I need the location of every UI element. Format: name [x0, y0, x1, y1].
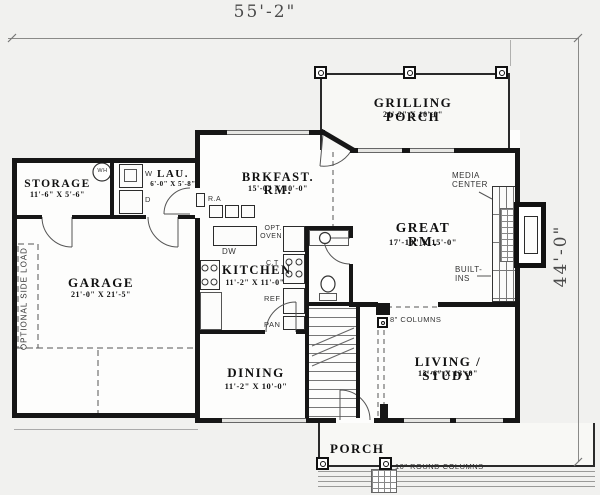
wall-segment [515, 148, 520, 423]
column-dot-icon [318, 70, 324, 76]
round-column-icon [316, 457, 329, 470]
room-name-garage: GARAGE [68, 276, 134, 290]
room-size-kitchen: 11'-2" X 11'-0" [220, 278, 290, 287]
room-size-great-room: 17'-10" X 15'-0" [381, 237, 465, 247]
wall-segment [305, 306, 309, 418]
column-dot-icon [383, 461, 389, 467]
dryer-label: D [145, 196, 151, 205]
room-name-storage: STORAGE [20, 178, 95, 190]
range-burner-icon [211, 265, 217, 271]
wall-segment [195, 218, 200, 418]
wall-segment [178, 215, 195, 219]
window [222, 418, 306, 423]
built-ins-label: BUILT- INS [455, 265, 493, 283]
wall-segment [349, 302, 378, 307]
columns8-label: 8" COLUMNS [390, 316, 441, 325]
stair-rail-diagonals [312, 328, 354, 366]
wall-segment [195, 330, 265, 334]
cooktop-burner-icon [296, 271, 302, 277]
washer-label: W [145, 170, 153, 179]
range-burner-icon [202, 279, 208, 285]
room-size-grilling-porch: 21'-2" X 10'-0" [348, 110, 478, 119]
porch-column-icon [314, 66, 327, 79]
wall-segment [349, 264, 353, 306]
wall-segment [380, 404, 388, 420]
window [227, 130, 309, 135]
room-size-laundry: 6'-0" X 5'-8" [144, 180, 202, 188]
room-name-laundry: LAU. [148, 169, 198, 181]
room-name-dining: DINING [226, 366, 286, 380]
room-name-porch: PORCH [330, 442, 382, 456]
range-burner-icon [211, 279, 217, 285]
wall-segment [12, 158, 200, 163]
room-size-dining: 11'-2" X 10'-0" [220, 381, 292, 391]
window [358, 148, 402, 153]
pantry-label: PAN [264, 321, 280, 330]
return-air-label: R.A [208, 196, 221, 204]
column-dot-icon [407, 70, 413, 76]
laundry-door-arc [164, 188, 190, 214]
storage-door-arc [42, 217, 72, 247]
front-door-arc [340, 390, 370, 420]
room-size-breakfast: 15'-0" X 10'-0" [233, 184, 323, 193]
round-columns-label: 10" ROUND COLUMNS [395, 463, 484, 472]
column-dot-icon [320, 461, 326, 467]
round-column-icon [379, 457, 392, 470]
wall-segment [349, 226, 353, 238]
square-column-icon [377, 317, 388, 328]
wall-segment [12, 413, 200, 418]
wall-segment [72, 215, 146, 219]
height-dimension: 44'-0" [551, 216, 571, 296]
dishwasher-label: DW [222, 247, 236, 256]
wall-segment [12, 158, 17, 418]
room-size-garage: 21'-0" X 21'-5" [62, 290, 140, 299]
label-leader-lines [477, 192, 492, 276]
toilet-bowl-icon [321, 276, 335, 292]
wall-segment [305, 226, 309, 306]
water-heater-label: WH [95, 168, 110, 174]
window [456, 418, 503, 423]
garage-bay-dashed-lines [17, 348, 195, 413]
window [410, 148, 454, 153]
floor-plan-sheet: 55'-2" 44'-0" GRILLING PORCH 21'-2" X 10… [0, 0, 600, 495]
wall-segment [305, 302, 353, 306]
wall-segment [438, 302, 520, 307]
window [404, 418, 450, 423]
room-size-living-study: 13'-6" X 13'-0" [402, 369, 494, 378]
refrigerator-label: REF [264, 295, 281, 304]
wall-segment [305, 226, 353, 230]
cooktop-burner-icon [296, 259, 302, 265]
wall-segment [12, 215, 42, 219]
width-dimension: 55'-2" [180, 2, 350, 22]
garage-hall-door-arc [148, 217, 178, 247]
room-size-storage: 11'-6" X 5'-6" [18, 190, 97, 199]
media-center-label: MEDIA CENTER [452, 171, 498, 189]
column-dot-icon [381, 321, 385, 325]
range-burner-icon [202, 265, 208, 271]
wall-segment [110, 158, 114, 219]
wall-segment [296, 330, 309, 334]
dimension-tick-marks [8, 34, 582, 466]
optional-side-load-label: OPTIONAL SIDE LOAD [19, 244, 28, 354]
porch-column-icon [495, 66, 508, 79]
opt-oven-label: OPT. OVEN [254, 225, 282, 241]
porch-column-icon [403, 66, 416, 79]
firebox [524, 216, 538, 254]
cooktop-label: C.T [266, 260, 279, 268]
wall-segment [356, 306, 360, 418]
column-dot-icon [499, 70, 505, 76]
wall-segment [376, 303, 390, 315]
sink-icon [320, 233, 331, 244]
